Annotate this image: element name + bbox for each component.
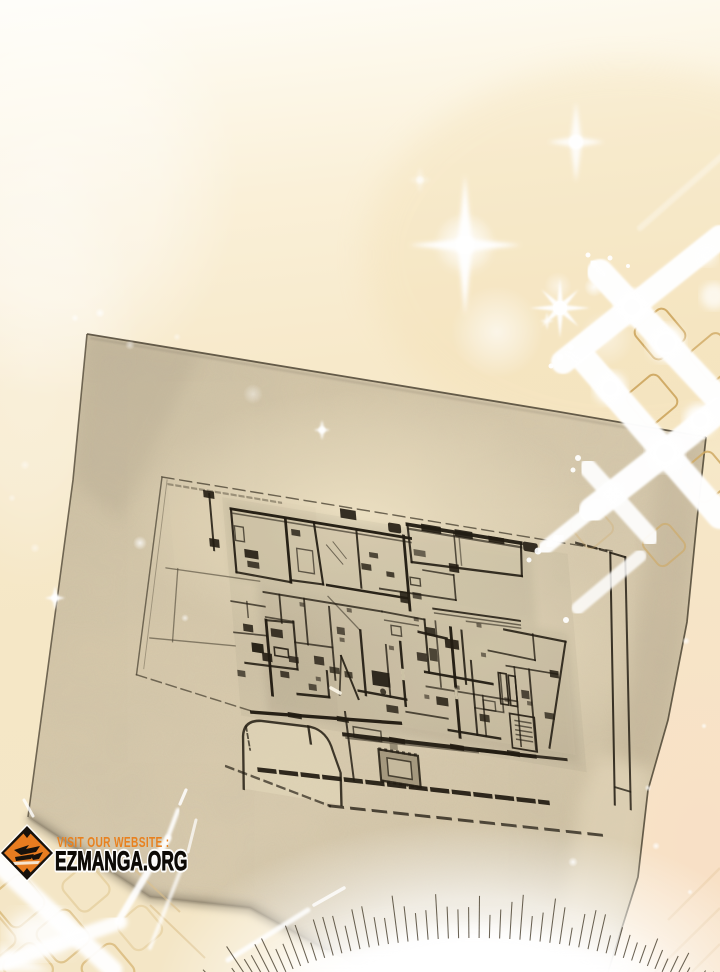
svg-text:EZMANGA.ORG: EZMANGA.ORG [55, 845, 187, 876]
